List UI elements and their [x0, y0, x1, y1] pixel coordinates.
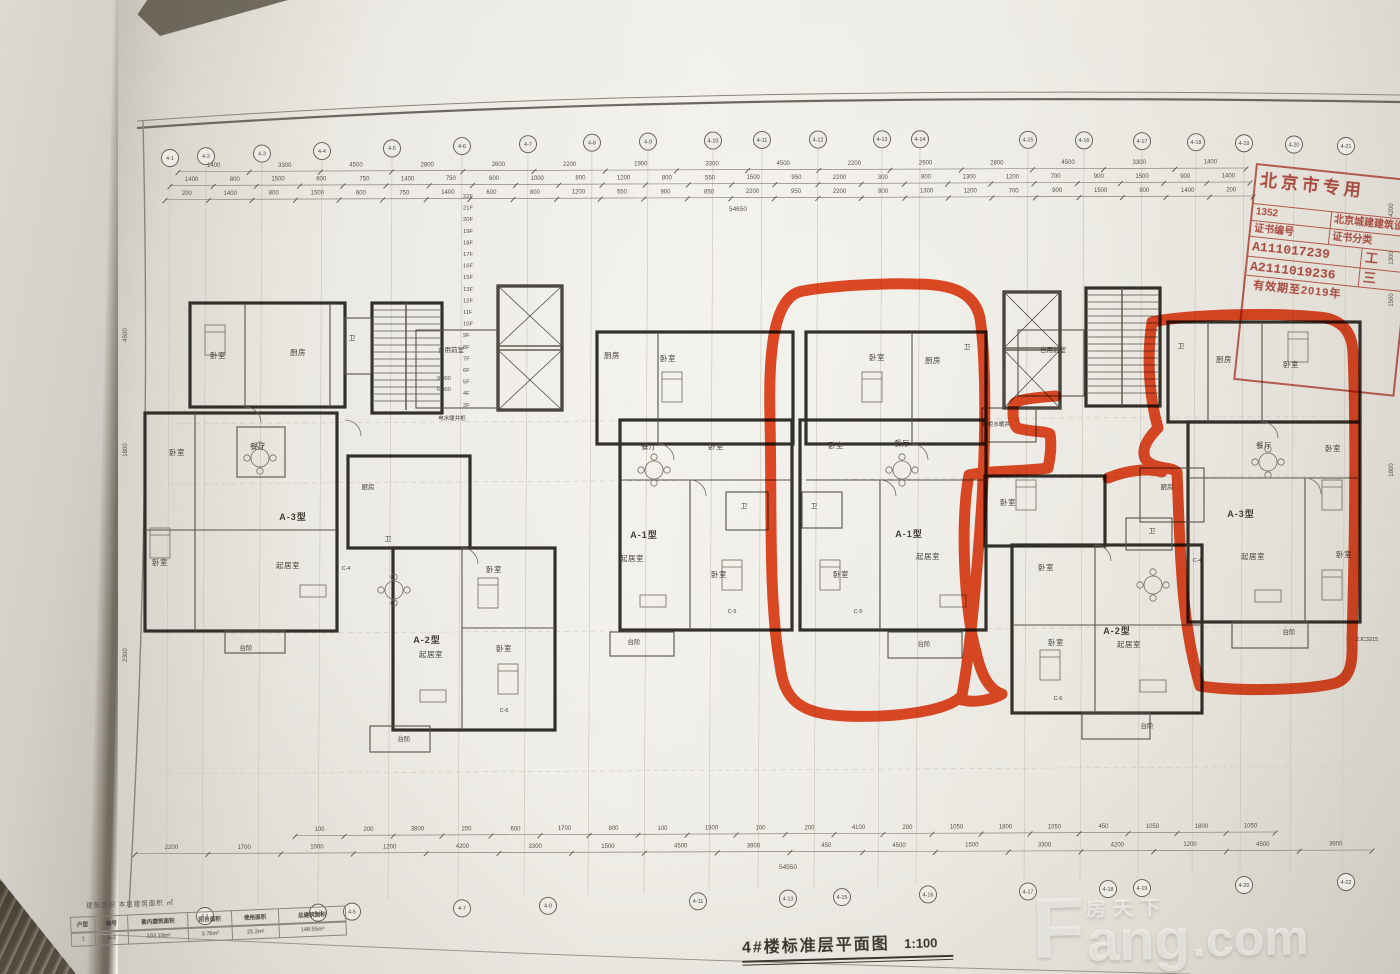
- area-table-cell: A-1: [95, 931, 129, 946]
- red-approval-stamp: 北京市专用 1352北京城建建筑设证书编号证书分类A111017239工A211…: [1233, 163, 1400, 397]
- area-table-cell: 1: [71, 932, 96, 947]
- area-table-cell: 103.19m²: [129, 928, 189, 944]
- fang-watermark: F 房天下 ang .com: [1031, 887, 1309, 966]
- watermark-com: .com: [1191, 915, 1309, 962]
- area-table-header-cell: 编号: [95, 915, 129, 932]
- area-table-cell: 25.2m²: [233, 924, 280, 940]
- area-table-cell: 148.55m²: [279, 921, 347, 938]
- watermark-ang: ang: [1086, 915, 1190, 965]
- area-table-header-cell: 户型: [70, 916, 95, 933]
- area-table: 户型编号套内建筑面积阳台面积使用面积总建筑面积 1A-1103.19m²3.76…: [70, 905, 348, 973]
- watermark-f: F: [1031, 892, 1085, 966]
- photo-of-blueprint-book: 4-14-24-34-44-54-64-74-84-94-104-114-124…: [0, 0, 1400, 974]
- area-table-header-cell: 阳台面积: [188, 910, 233, 928]
- drawing-title-text: 4#楼标准层平面图: [742, 936, 890, 957]
- area-table-cell: 3.76m²: [189, 926, 234, 942]
- drawing-title: 4#楼标准层平面图 1:100: [742, 928, 938, 965]
- area-table-header-cell: 使用面积: [232, 908, 279, 926]
- blueprint-page: [118, 0, 1400, 974]
- drawing-scale: 1:100: [904, 935, 938, 951]
